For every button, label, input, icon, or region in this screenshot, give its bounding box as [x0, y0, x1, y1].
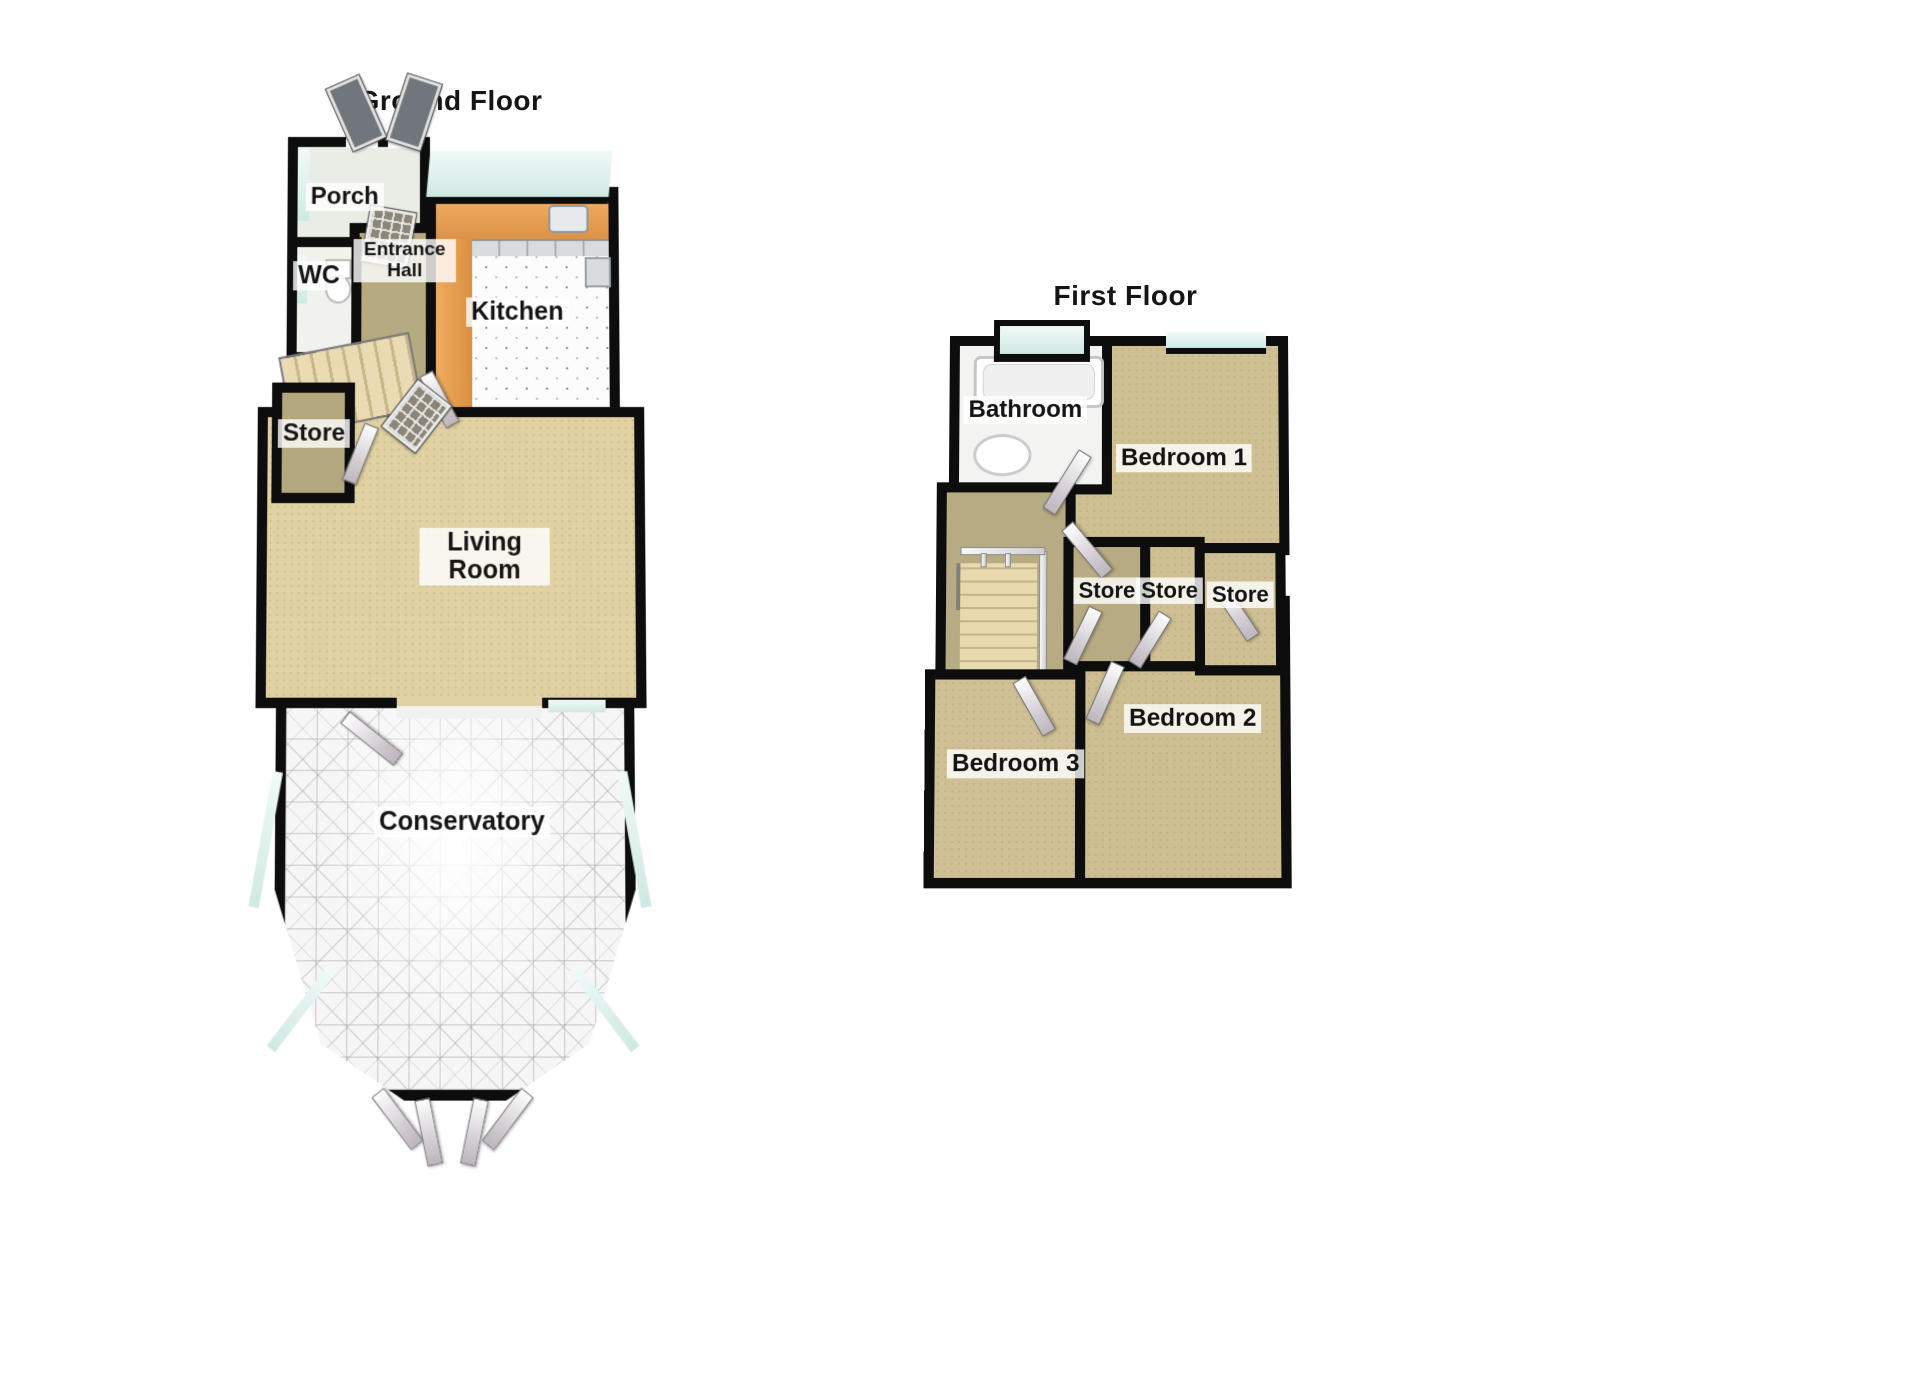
room-label-conservatory: Conservatory — [374, 807, 550, 838]
bedroom1-window — [1166, 332, 1266, 354]
room-bedroom-3 — [923, 669, 1085, 888]
room-label-store-2: Store — [1136, 577, 1203, 603]
living-rear-window — [548, 700, 605, 713]
room-label-store-1: Store — [1073, 577, 1140, 603]
staircase-first-floor — [960, 563, 1037, 673]
room-conservatory — [273, 698, 637, 1101]
room-label-bedroom-1: Bedroom 1 — [1116, 444, 1252, 472]
kitchen-cabinets — [472, 239, 609, 256]
room-label-store-3: Store — [1207, 582, 1274, 608]
ground-floor-drawing: Porch WC Entrance Hall Kitchen Store — [242, 137, 658, 1111]
banister-rail — [1039, 551, 1048, 675]
kitchen-rear-window — [426, 151, 613, 204]
bathroom-window — [994, 320, 1090, 362]
conservatory-opening — [397, 696, 542, 719]
banister-post — [981, 553, 987, 567]
french-door-leaf — [460, 1098, 489, 1167]
room-label-entrance-hall: Entrance Hall — [353, 239, 456, 282]
first-floor-title: First Floor — [928, 280, 1323, 312]
kitchen-hob — [585, 257, 611, 287]
room-label-living-room: Living Room — [419, 528, 549, 586]
room-label-store-ground: Store — [278, 419, 350, 447]
first-floor-plan: First Floor Bathroom Bedroom 1 — [928, 280, 1323, 900]
room-label-bedroom-3: Bedroom 3 — [947, 749, 1085, 778]
room-label-kitchen: Kitchen — [466, 297, 569, 326]
french-door-leaf — [414, 1098, 443, 1167]
ground-floor-plan: Ground Floor Porch WC Entrance Hall — [250, 85, 650, 1085]
first-floor-drawing: Bathroom Bedroom 1 Store Store Store Bed… — [923, 336, 1327, 891]
banister-post — [1005, 553, 1011, 567]
room-label-porch: Porch — [306, 183, 384, 211]
room-label-bedroom-2: Bedroom 2 — [1124, 704, 1262, 733]
bathroom-sink — [973, 434, 1032, 476]
kitchen-sink — [548, 205, 588, 233]
room-label-wc: WC — [293, 261, 345, 290]
room-label-bathroom: Bathroom — [963, 396, 1087, 424]
ground-floor-title: Ground Floor — [250, 85, 650, 117]
banister-rail — [961, 547, 1046, 555]
